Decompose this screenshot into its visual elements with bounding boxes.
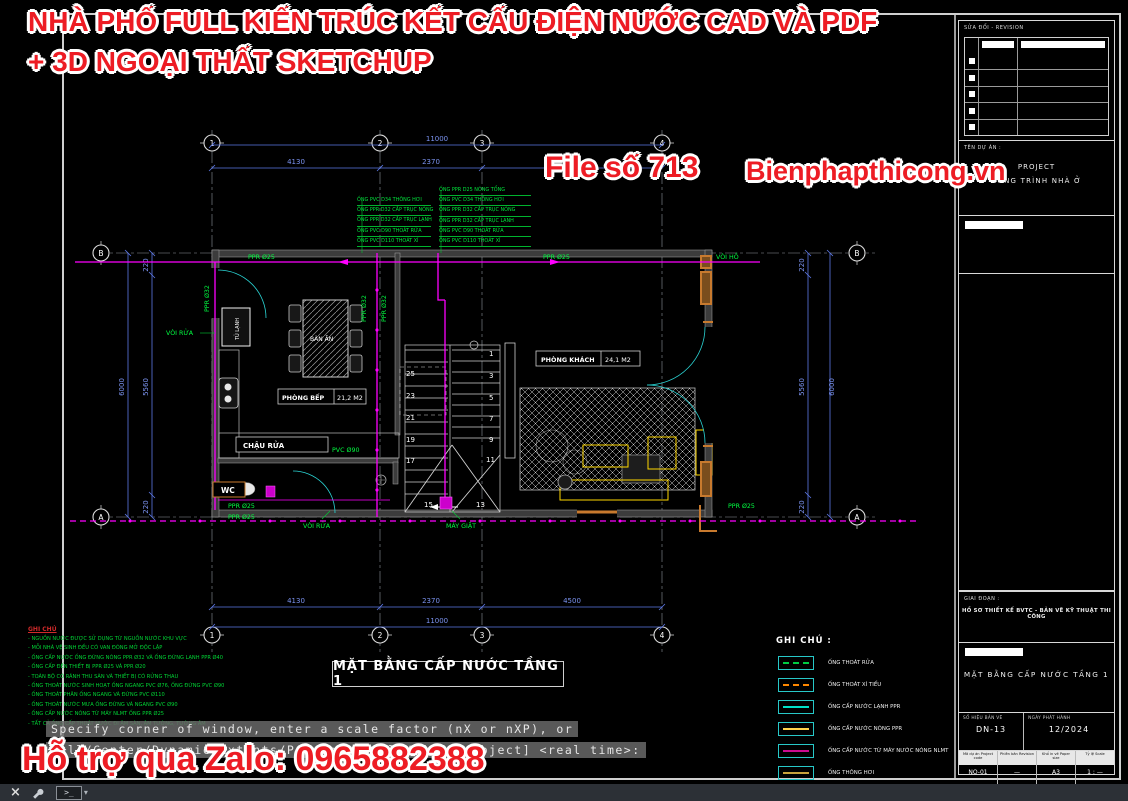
legend-line-sample [783,772,809,774]
footer-cell: Phiên bản Revision — [998,751,1037,786]
svg-text:1: 1 [489,350,493,358]
kitchen-room-label: PHÒNG BẾP 21,2 M2 [278,389,366,404]
revision-marker [969,91,975,97]
legend-line-sample [783,750,809,752]
legend-panel: GHI CHÚ : ỐNG THOÁT RỬA ỐNG THOÁT XÍ TIỂ… [770,634,960,784]
svg-text:PPR Ø32: PPR Ø32 [203,285,211,312]
footer-cell-value: A3 [1037,769,1075,776]
washing-machine-label: MÁY GIẶT [446,521,476,530]
wrench-icon[interactable] [31,786,44,799]
svg-text:PPR Ø32: PPR Ø32 [380,295,388,322]
sheet-name-label-bar [965,648,1023,656]
footer-cell-value: 1 : — [1076,769,1114,776]
sheet-no-cell: SỐ HIỆU BẢN VẼ DN-13 [959,713,1024,750]
revision-marker [969,75,975,81]
revision-row [965,54,1108,70]
sheet-number-section: SỐ HIỆU BẢN VẼ DN-13 NGÀY PHÁT HÀNH 12/2… [959,713,1114,751]
riser-line: ỐNG PPR D32 CẤP TRỤC NÓNG [357,206,431,216]
svg-text:220: 220 [142,258,150,271]
riser-line: ỐNG PVC D34 THÔNG HƠI [439,196,531,206]
svg-text:PHÒNG BẾP: PHÒNG BẾP [282,392,325,402]
watermark-headline: NHÀ PHỐ FULL KIẾN TRÚC KẾT CẤU ĐIỆN NƯỚC… [28,2,877,82]
legend-item: ỐNG THÔNG HƠI [770,762,960,784]
svg-text:11000: 11000 [426,135,448,143]
issue-date-label: NGÀY PHÁT HÀNH [1024,716,1114,721]
svg-text:PVC Ø90: PVC Ø90 [332,446,359,454]
footer-table: Mã dự án Project code NO-01 Phiên bản Re… [959,751,1114,786]
watermark-zalo: Hỗ trợ qua Zalo: 0965882388 [22,740,485,779]
svg-text:220: 220 [798,500,806,513]
svg-text:220: 220 [142,500,150,513]
svg-text:3: 3 [489,372,493,380]
watermark-headline-line2: + 3D NGOẠI THẤT SKETCHUP [28,42,877,82]
close-icon[interactable]: × [10,786,21,799]
notes-title: GHI CHÚ [28,626,253,633]
svg-text:13: 13 [476,501,485,509]
legend-swatch [778,722,814,736]
svg-text:4500: 4500 [563,597,581,605]
legend-swatch [778,656,814,670]
svg-text:PPR Ø25: PPR Ø25 [228,513,255,521]
issue-date-cell: NGÀY PHÁT HÀNH 12/2024 [1024,713,1114,750]
svg-text:25: 25 [406,370,415,378]
kitchen-fixtures [219,300,399,458]
footer-cell-value: NO-01 [959,769,997,776]
svg-text:24,1 M2: 24,1 M2 [605,356,631,364]
svg-text:4: 4 [660,631,665,640]
staircase [400,341,515,512]
drawing-title: MẶT BẰNG CẤP NƯỚC TẦNG 1 [332,661,564,687]
svg-text:11000: 11000 [426,617,448,625]
svg-text:5: 5 [489,394,493,402]
svg-text:PPR Ø25: PPR Ø25 [228,502,255,510]
legend-line-sample [783,706,809,708]
riser-list-right: ỐNG PPR D25 NÓNG TỔNGỐNG PVC D34 THÔNG H… [439,186,531,247]
water-pipes [70,253,920,523]
footer-cell-value: — [998,769,1036,776]
svg-text:3: 3 [480,631,485,640]
revision-table [964,37,1109,136]
status-bar: × >_ ▾ [0,784,1128,801]
legend-item: ỐNG CẤP NƯỚC NÓNG PPR [770,718,960,740]
project-label: TÊN DỰ ÁN : [959,141,1114,151]
revision-header: SỬA ĐỔI - REVISION [959,21,1114,31]
riser-line: ỐNG PVC D110 THOÁT XÍ [439,237,531,247]
revision-marker [969,124,975,130]
note-line: - ỐNG CẤP ĐẾN THIẾT BỊ PPR Ø25 VÀ PPR Ø2… [28,663,253,672]
riser-line: ỐNG PPR D32 CẤP TRỤC LẠNH [357,216,431,226]
watermark-headline-line1: NHÀ PHỐ FULL KIẾN TRÚC KẾT CẤU ĐIỆN NƯỚC… [28,2,877,42]
svg-text:4130: 4130 [287,597,305,605]
svg-text:3: 3 [480,139,485,148]
svg-text:19: 19 [406,436,415,444]
svg-text:CHẬU RỬA: CHẬU RỬA [243,440,285,450]
legend-item: ỐNG CẤP NƯỚC TỪ MÁY NƯỚC NÓNG NLMT [770,740,960,762]
riser-list-left: ỐNG PVC D34 THÔNG HƠIỐNG PPR D32 CẤP TRỤ… [357,196,431,247]
legend-label: ỐNG CẤP NƯỚC LẠNH PPR [828,704,900,710]
legend-label: ỐNG THOÁT RỬA [828,660,874,666]
riser-line: ỐNG PPR D25 NÓNG TỔNG [439,186,531,196]
watermark-file-number: File số 713 [545,151,698,185]
footer-cell: Khổ in vẽ Paper size A3 [1037,751,1076,786]
svg-text:17: 17 [406,457,415,465]
svg-text:B: B [854,249,859,258]
legend-swatch [778,744,814,758]
footer-cell-label: Tỷ lệ Scale [1076,751,1114,765]
owner-section [959,221,1114,274]
footer-cell-label: Phiên bản Revision [998,751,1036,765]
revision-marker [969,58,975,64]
riser-line: ỐNG PVC D90 THOÁT RỬA [357,227,431,237]
note-line: - TOÀN BỘ CÓ RÃNH THU SÀN VÀ THIẾT BỊ CÓ… [28,673,253,682]
legend-item: ỐNG CẤP NƯỚC LẠNH PPR [770,696,960,718]
svg-text:PPR Ø25: PPR Ø25 [728,502,755,510]
legend-label: ỐNG THOÁT XÍ TIỂU [828,682,881,688]
note-line: - MỖI NHÀ VỆ SINH ĐỀU CÓ VAN ĐÓNG MỞ ĐỘC… [28,644,253,653]
revision-table-header [965,38,1108,54]
notes-panel: GHI CHÚ - NGUỒN NƯỚC ĐƯỢC SỬ DỤNG TỪ NGU… [28,626,253,729]
riser-line: ỐNG PVC D90 THOÁT RỬA [439,227,531,237]
note-line: - ỐNG THOÁT PHÂN ỐNG NGANG VÀ ĐỨNG PVC Ø… [28,691,253,700]
command-prompt-icon[interactable]: >_ [56,786,82,800]
svg-text:4130: 4130 [287,158,305,166]
living-room-label: PHÒNG KHÁCH 24,1 M2 [536,351,640,366]
owner-label-bar [965,221,1023,229]
note-line: - ỐNG CẤP NƯỚC NÓNG TỪ MÁY NLMT ỐNG PPR … [28,710,253,719]
revision-row [965,119,1108,136]
title-block: SỬA ĐỔI - REVISION [958,20,1115,775]
revision-section: SỬA ĐỔI - REVISION [959,21,1114,141]
svg-text:2: 2 [378,631,383,640]
legend-label: ỐNG THÔNG HƠI [828,770,874,776]
svg-text:6000: 6000 [828,378,836,396]
note-line: - ỐNG CẤP NƯỚC ỐNG ĐỨNG NÓNG PPR Ø32 VÀ … [28,654,253,663]
svg-text:2370: 2370 [422,158,440,166]
svg-text:WC: WC [221,486,235,495]
note-line: - NGUỒN NƯỚC ĐƯỢC SỬ DỤNG TỪ NGUỒN NƯỚC … [28,635,253,644]
footer-cell: Tỷ lệ Scale 1 : — [1076,751,1114,786]
legend-line-sample [783,728,809,730]
svg-text:2370: 2370 [422,597,440,605]
revision-marker [969,108,975,114]
revision-row [965,102,1108,119]
sheet-no-label: SỐ HIỆU BẢN VẼ [959,716,1023,721]
riser-line: ỐNG PVC D34 THÔNG HƠI [357,196,431,206]
svg-text:BÀN ĂN: BÀN ĂN [310,336,333,343]
legend-swatch [778,766,814,780]
sheet-name: MẶT BẰNG CẤP NƯỚC TẦNG 1 [959,670,1114,679]
sheet-no-value: DN-13 [959,725,1023,734]
svg-text:PPR Ø25: PPR Ø25 [543,253,570,261]
legend-line-sample [783,662,809,664]
legend-label: ỐNG CẤP NƯỚC TỪ MÁY NƯỚC NÓNG NLMT [828,748,948,754]
blank-section [959,274,1114,591]
chevron-down-icon[interactable]: ▾ [84,788,88,797]
legend-item: ỐNG THOÁT RỬA [770,652,960,674]
legend-swatch [778,700,814,714]
svg-text:220: 220 [798,258,806,271]
legend-line-sample [783,684,809,686]
svg-text:5560: 5560 [142,378,150,396]
svg-text:11: 11 [486,456,495,464]
riser-line: ỐNG PPR D32 CẤP TRỤC LẠNH [439,217,531,227]
revision-row [965,69,1108,86]
autocad-viewport[interactable]: 1 2 3 4 1 2 3 4 B A B A [0,0,1128,801]
svg-text:PHÒNG KHÁCH: PHÒNG KHÁCH [541,355,595,364]
svg-text:B: B [98,249,103,258]
footer-cell: Mã dự án Project code NO-01 [959,751,998,786]
sheet-name-section: MẶT BẰNG CẤP NƯỚC TẦNG 1 [959,648,1114,713]
legend-item: ỐNG THOÁT XÍ TIỂU [770,674,960,696]
revision-row [965,86,1108,103]
garden-tap-label: VÒI HỒ [716,251,739,261]
svg-text:21,2 M2: 21,2 M2 [337,394,363,402]
riser-line: ỐNG PPR D32 CẤP TRỤC NÓNG [439,206,531,216]
legend-title: GHI CHÚ : [776,636,960,646]
footer-cell-label: Khổ in vẽ Paper size [1037,751,1075,765]
note-line: - ỐNG THOÁT NƯỚC MƯA ỐNG ĐỨNG VÀ NGANG P… [28,701,253,710]
footer-cell-label: Mã dự án Project code [959,751,997,765]
svg-text:PPR Ø32: PPR Ø32 [360,295,368,322]
svg-text:7: 7 [489,415,493,423]
svg-text:21: 21 [406,414,415,422]
watermark-website: Bienphapthicong.vn [746,156,1006,187]
svg-text:23: 23 [406,392,415,400]
legend-label: ỐNG CẤP NƯỚC NÓNG PPR [828,726,902,732]
issue-date-value: 12/2024 [1024,725,1114,734]
faucet-left-label: VÒI RỬA [166,328,194,337]
svg-text:PPR Ø25: PPR Ø25 [248,253,275,261]
note-line: - ỐNG THOÁT NƯỚC SINH HOẠT ỐNG NGANG PVC… [28,682,253,691]
phase-section: GIAI ĐOẠN : HỒ SƠ THIẾT KẾ BVTC - BẢN VẼ… [959,591,1114,643]
svg-text:5560: 5560 [798,378,806,396]
living-room-furniture [520,388,712,500]
svg-text:9: 9 [489,436,493,444]
svg-text:TỦ LẠNH: TỦ LẠNH [233,318,241,341]
phase-label: GIAI ĐOẠN : [959,592,1114,602]
command-line-prompt[interactable]: Specify corner of window, enter a scale … [46,721,578,737]
faucet-bottom-label: VÒI RỬA [303,521,331,530]
riser-line: ỐNG PVC D110 THOÁT XÍ [357,237,431,247]
phase-value: HỒ SƠ THIẾT KẾ BVTC - BẢN VẼ KỸ THUẬT TH… [959,608,1114,620]
svg-text:15: 15 [424,501,433,509]
svg-text:2: 2 [378,139,383,148]
svg-text:6000: 6000 [118,378,126,396]
legend-swatch [778,678,814,692]
